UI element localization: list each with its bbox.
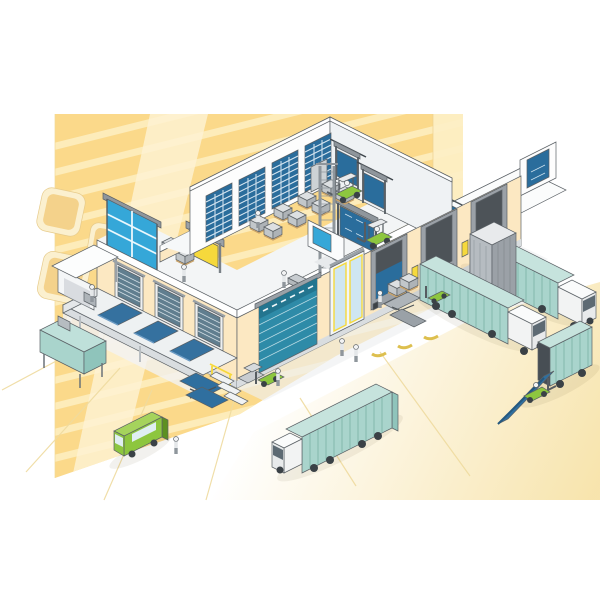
entrance-door-leaf	[350, 255, 362, 323]
worker	[182, 265, 187, 282]
operator	[276, 369, 281, 386]
worker	[256, 211, 261, 228]
worker	[340, 339, 345, 356]
wall-tile-inner	[42, 193, 80, 231]
entrance-door-leaf	[334, 263, 346, 331]
worker	[354, 345, 359, 362]
worker	[90, 285, 95, 302]
worker	[282, 271, 287, 288]
illustration-canvas: Isometric cutaway illustration of a two-…	[0, 0, 600, 600]
worker	[378, 291, 383, 308]
door-control-box	[462, 240, 468, 257]
van-rear	[162, 417, 168, 440]
warehouse-illustration: Isometric cutaway illustration of a two-…	[0, 0, 600, 600]
pedestrian	[174, 437, 179, 454]
trailer-rear	[392, 392, 398, 431]
